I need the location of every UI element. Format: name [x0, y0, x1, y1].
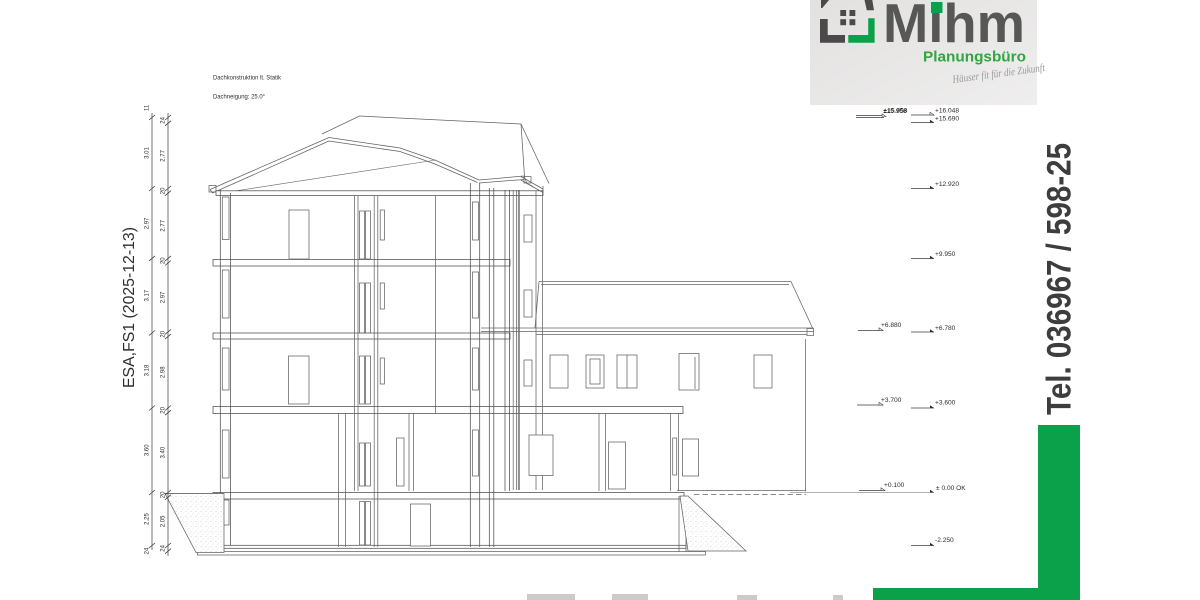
svg-text:Dachkonstruktion lt. Statik: Dachkonstruktion lt. Statik: [213, 74, 282, 81]
svg-text:20: 20: [161, 330, 167, 337]
svg-text:+9.950: +9.950: [935, 251, 956, 258]
svg-text:20: 20: [161, 491, 167, 498]
svg-text:Planungsbüro: Planungsbüro: [923, 50, 1026, 66]
svg-text:Mıhm: Mıhm: [883, 0, 1025, 54]
svg-text:2.98: 2.98: [161, 366, 167, 378]
svg-text:20: 20: [161, 406, 167, 413]
svg-text:+6.780: +6.780: [935, 325, 956, 332]
svg-text:20: 20: [161, 257, 167, 264]
svg-text:24: 24: [161, 544, 167, 551]
svg-text:2.97: 2.97: [161, 291, 167, 303]
svg-text:3.18: 3.18: [145, 364, 151, 376]
svg-text:±15.958: ±15.958: [884, 107, 908, 114]
svg-text:2.77: 2.77: [161, 219, 167, 231]
svg-text:11: 11: [145, 104, 151, 111]
svg-text:2.05: 2.05: [161, 515, 167, 527]
svg-text:+3.600: +3.600: [935, 400, 956, 407]
svg-text:3.40: 3.40: [161, 446, 167, 458]
svg-text:Tel. 036967 / 598-25: Tel. 036967 / 598-25: [1041, 143, 1079, 415]
svg-text:3.17: 3.17: [145, 289, 151, 301]
svg-text:20: 20: [161, 187, 167, 194]
svg-text:24: 24: [161, 116, 167, 123]
svg-text:+6.880: +6.880: [881, 322, 902, 329]
svg-text:-2.250: -2.250: [935, 537, 954, 544]
svg-text:+0.100: +0.100: [884, 482, 905, 489]
svg-text:± 0.00 OK: ± 0.00 OK: [936, 485, 966, 492]
svg-text:24: 24: [145, 547, 151, 554]
svg-text:3.01: 3.01: [145, 147, 151, 159]
svg-text:2.25: 2.25: [145, 513, 151, 525]
svg-text:2.77: 2.77: [161, 149, 167, 161]
svg-text:ESA,FS1 (2025-12-13): ESA,FS1 (2025-12-13): [121, 227, 138, 388]
svg-text:Dachneigung: 25.0°: Dachneigung: 25.0°: [213, 92, 265, 100]
svg-text:2.97: 2.97: [145, 217, 151, 229]
svg-text:3.60: 3.60: [145, 444, 151, 456]
svg-text:+12.920: +12.920: [935, 181, 959, 188]
svg-text:+15.690: +15.690: [935, 116, 959, 123]
svg-text:+3.700: +3.700: [881, 397, 902, 404]
svg-text:+16.048: +16.048: [935, 108, 959, 115]
